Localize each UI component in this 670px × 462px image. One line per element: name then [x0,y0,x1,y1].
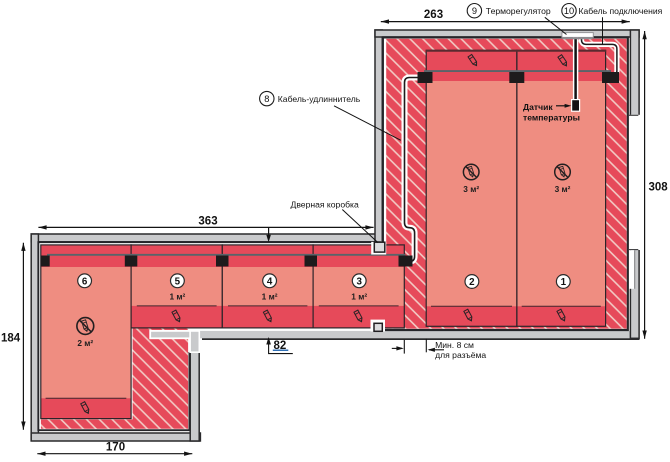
svg-text:184: 184 [1,333,21,345]
svg-text:для разъёма: для разъёма [435,350,486,360]
svg-text:8: 8 [264,94,269,104]
svg-text:Кабель-удлиннитель: Кабель-удлиннитель [278,94,361,104]
svg-text:1 м²: 1 м² [169,292,185,302]
svg-text:10: 10 [564,6,574,16]
svg-text:9: 9 [472,6,477,16]
svg-text:1: 1 [561,277,567,288]
svg-text:170: 170 [106,442,125,454]
svg-text:Терморегулятор: Терморегулятор [486,6,551,16]
svg-text:Мин. 8 см: Мин. 8 см [435,340,474,350]
svg-text:2: 2 [469,277,475,288]
svg-text:Дверная коробка: Дверная коробка [291,199,359,209]
svg-text:4: 4 [267,276,273,287]
svg-text:1 м²: 1 м² [262,292,278,302]
svg-text:3 м²: 3 м² [463,184,479,194]
svg-text:3: 3 [356,276,362,287]
svg-text:температуры: температуры [523,112,580,122]
svg-text:5: 5 [175,276,181,287]
svg-text:363: 363 [198,216,217,228]
svg-text:1 м²: 1 м² [351,292,367,302]
svg-text:3 м²: 3 м² [555,184,571,194]
svg-text:263: 263 [424,9,443,21]
svg-text:6: 6 [82,276,88,287]
svg-text:Датчик: Датчик [523,102,553,112]
svg-text:2 м²: 2 м² [77,338,93,348]
svg-text:Кабель подключения: Кабель подключения [579,6,663,16]
svg-text:308: 308 [649,182,669,194]
